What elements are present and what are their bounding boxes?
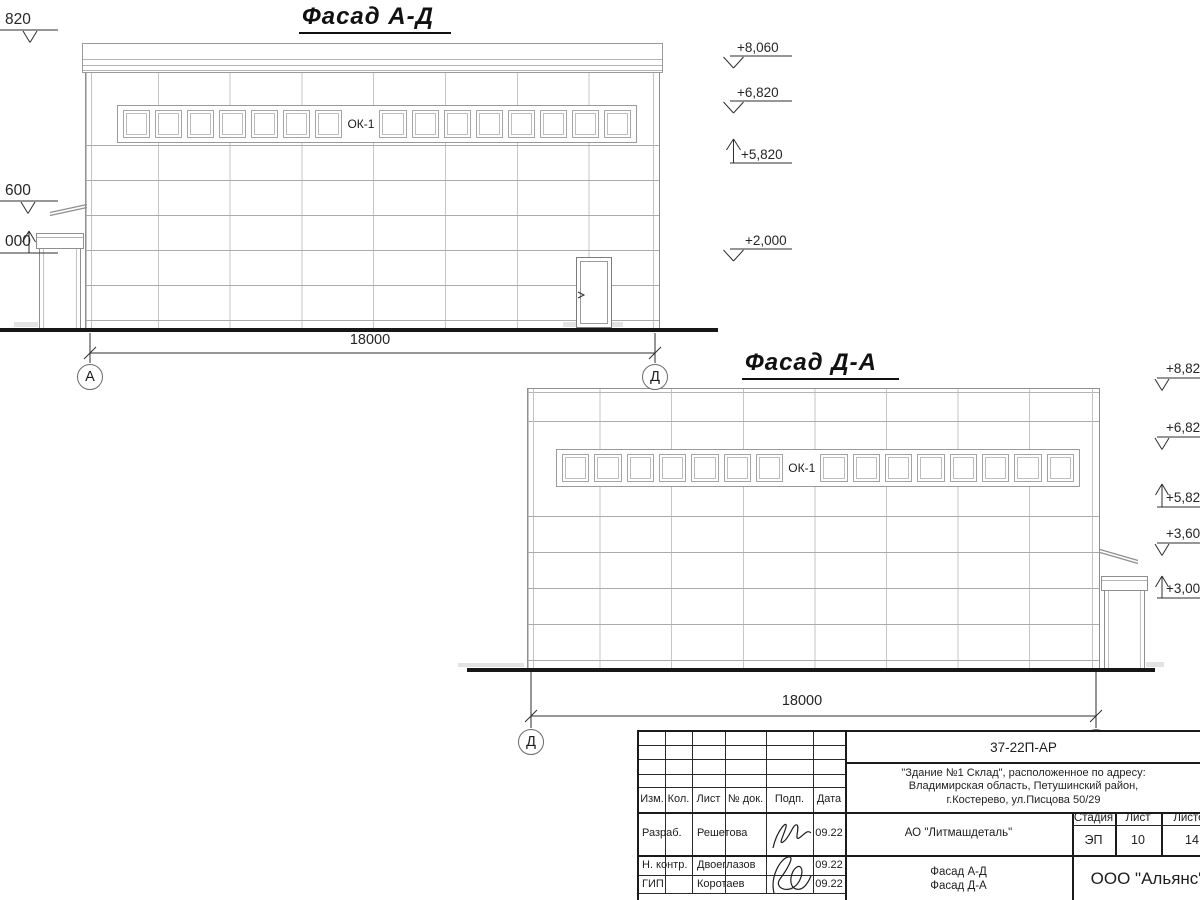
annex-frame-line	[43, 249, 44, 328]
elevation-mark: +6,82	[1166, 420, 1200, 435]
facade2-panel-grid	[528, 489, 1099, 668]
axis-bubble-a: А	[77, 364, 103, 390]
address-line: г.Костерево, ул.Писцова 50/29	[947, 794, 1101, 808]
address-line: "Здание №1 Склад", расположенное по адре…	[901, 767, 1145, 781]
stamp-address: "Здание №1 Склад", расположенное по адре…	[845, 762, 1200, 812]
annex-roof-line	[1102, 580, 1147, 581]
signer-role: Разраб.	[639, 812, 692, 855]
sheet-value: 10	[1115, 825, 1161, 855]
window-ok1	[820, 454, 847, 482]
window-ok1	[155, 110, 182, 138]
title-block: Изм. Кол. Лист № док. Подп. Дата Разраб.…	[637, 730, 1200, 900]
elevation-mark: +6,820	[737, 85, 779, 100]
annex-frame-line	[1140, 591, 1141, 668]
parapet-line	[83, 59, 662, 60]
elevation-mark: +5,82	[1166, 490, 1200, 505]
signer-date: 09.22	[813, 855, 845, 875]
window-ok1	[917, 454, 944, 482]
window-ok1	[572, 110, 599, 138]
apron	[458, 663, 524, 667]
signer-date: 09.22	[813, 812, 845, 855]
signer-date: 09.22	[813, 875, 845, 893]
stamp-line	[639, 893, 845, 894]
signer-name: Решетова	[694, 812, 765, 855]
elevation-mark: +3,00	[1166, 581, 1200, 596]
window-ok1	[756, 454, 783, 482]
axis-bubble-d: Д	[642, 364, 668, 390]
sheet-title-line: Фасад А-Д	[930, 865, 986, 879]
annex-frame-line	[76, 249, 77, 328]
facade1-title: Фасад А-Д	[302, 3, 434, 31]
window-band-label: ОК-1	[347, 110, 374, 138]
stage-value: ЭП	[1072, 825, 1115, 855]
window-ok1	[251, 110, 278, 138]
stamp-client: АО "Литмашдеталь"	[845, 812, 1072, 855]
window-ok1	[315, 110, 342, 138]
window-band-label: ОК-1	[788, 454, 815, 482]
stamp-col-kol: Кол.	[665, 787, 692, 812]
window-ok1	[508, 110, 535, 138]
facade2-dimension: 18000	[762, 693, 842, 709]
window-ok1	[853, 454, 880, 482]
signer-name: Двоеглазов	[694, 855, 765, 875]
facade2-window-band: ОК-1	[556, 449, 1080, 487]
window-ok1	[187, 110, 214, 138]
stamp-company: ООО "Альянс"	[1072, 855, 1200, 900]
facade1-window-band: ОК-1	[117, 105, 637, 143]
window-ok1	[562, 454, 589, 482]
elevation-mark: 000	[5, 233, 31, 251]
facade1-title-underline	[299, 32, 451, 34]
apron	[14, 322, 38, 327]
window-ok1	[627, 454, 654, 482]
window-ok1	[379, 110, 406, 138]
sheets-label: Листов	[1161, 812, 1200, 825]
elevation-mark: +8,82	[1166, 361, 1200, 376]
facade1-door	[576, 257, 612, 328]
facade1-parapet	[82, 43, 663, 73]
window-ok1	[123, 110, 150, 138]
elevation-mark: +5,820	[741, 147, 783, 162]
elevation-mark: +8,060	[737, 40, 779, 55]
address-line: Владимирская область, Петушинский район,	[909, 780, 1138, 794]
parapet-line	[528, 392, 1099, 393]
facade2-annex-roof	[1101, 576, 1148, 591]
facade2-title: Фасад Д-А	[745, 349, 877, 377]
window-ok1	[219, 110, 246, 138]
parapet-line	[83, 65, 662, 66]
signature-reshetova	[767, 816, 813, 854]
window-ok1	[476, 110, 503, 138]
stamp-line	[639, 759, 845, 760]
stamp-col-dok: № док.	[725, 787, 766, 812]
signer-role: Н. контр.	[639, 855, 692, 875]
signer-name: Коротаев	[694, 875, 765, 893]
window-ok1	[885, 454, 912, 482]
facade1-dimension: 18000	[330, 332, 410, 348]
drawing-sheet: Фасад А-Д ОК-1 +8,	[0, 0, 1200, 900]
window-ok1	[412, 110, 439, 138]
stamp-doc-number: 37-22П-АР	[845, 732, 1200, 762]
parapet-line	[83, 70, 662, 71]
facade2-wall	[527, 388, 1100, 668]
stamp-col-data: Дата	[813, 787, 845, 812]
facade2-ground-line	[467, 668, 1155, 672]
sheets-value: 14	[1161, 825, 1200, 855]
stamp-line	[639, 745, 845, 746]
annex-frame-line	[1108, 591, 1109, 668]
elevation-mark: +2,000	[745, 233, 787, 248]
window-ok1	[982, 454, 1009, 482]
facade1-annex-roof	[36, 233, 84, 249]
panel-row-line	[528, 421, 1099, 422]
window-ok1	[283, 110, 310, 138]
facade2-title-underline	[742, 378, 899, 380]
window-ok1	[950, 454, 977, 482]
elevation-mark: +3,60	[1166, 526, 1200, 541]
stamp-col-izm: Изм.	[639, 787, 665, 812]
axis-bubble-d: Д	[518, 729, 544, 755]
window-ok1	[1014, 454, 1041, 482]
facade1-panel-grid	[86, 143, 659, 328]
signer-role: ГИП	[639, 875, 692, 893]
stage-label: Стадия	[1072, 812, 1115, 825]
window-ok1	[659, 454, 686, 482]
annex-roof-line	[37, 237, 83, 238]
window-ok1	[691, 454, 718, 482]
stamp-col-podp: Подп.	[766, 787, 813, 812]
stamp-line	[639, 774, 845, 775]
window-ok1	[1047, 454, 1074, 482]
facade1-annex	[39, 249, 81, 328]
signature-korotaev	[766, 853, 814, 897]
facade1-ground-line	[0, 328, 718, 332]
elevation-mark: 820	[5, 11, 31, 29]
apron	[1146, 662, 1164, 667]
window-ok1	[444, 110, 471, 138]
stamp-col-list: Лист	[692, 787, 725, 812]
window-ok1	[724, 454, 751, 482]
window-ok1	[604, 110, 631, 138]
elevation-mark: 600	[5, 182, 31, 200]
sheet-title-line: Фасад Д-А	[930, 879, 986, 893]
stamp-sheet-title: Фасад А-Д Фасад Д-А	[845, 855, 1072, 900]
window-ok1	[594, 454, 621, 482]
facade2-annex	[1104, 591, 1145, 668]
sheet-label: Лист	[1115, 812, 1161, 825]
window-ok1	[540, 110, 567, 138]
